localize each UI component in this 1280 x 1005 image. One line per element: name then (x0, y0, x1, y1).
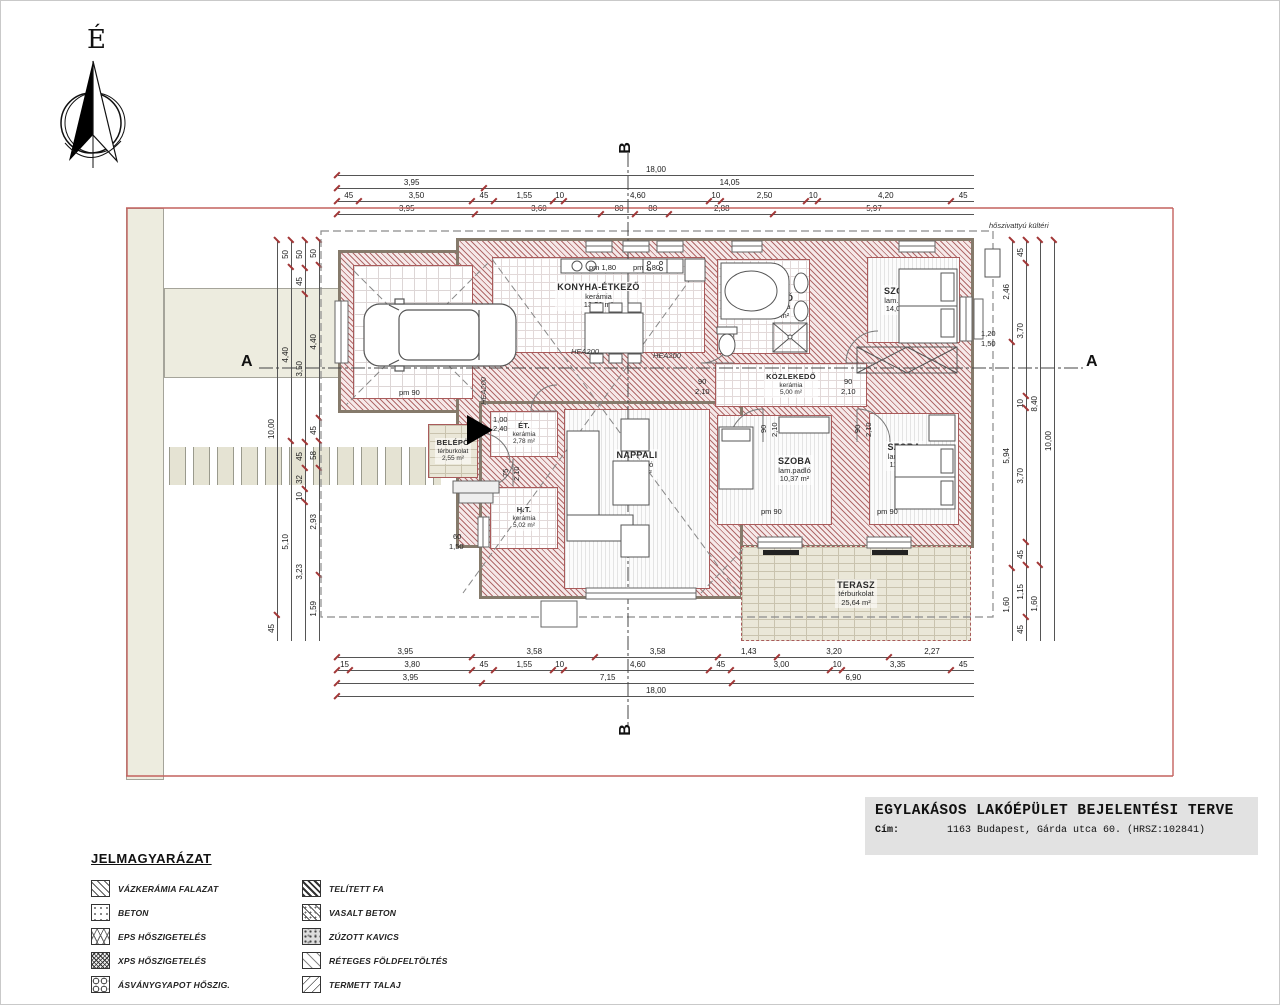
dim-value: 4,60 (565, 190, 710, 202)
plan-annotation: 90 (853, 425, 862, 433)
plan-annotation: 1,50 (981, 339, 996, 348)
legend-label: RÉTEGES FÖLDFELTÖLTÉS (329, 956, 448, 966)
dim-value: 50 (308, 241, 320, 266)
dim-value: 2,93 (308, 469, 320, 576)
dim-value: 3,50 (360, 190, 474, 202)
dim-value: 5,10 (280, 442, 292, 641)
drawing-title: EGYLAKÁSOS LAKÓÉPÜLET BEJELENTÉSI TERVE (875, 803, 1248, 819)
dim-value: 58 (308, 442, 320, 469)
dim-col-left-4: 504,4045582,931,59 (308, 241, 320, 641)
plan-annotation: HEA200 (571, 347, 599, 356)
legend-item: BETON (91, 904, 276, 921)
dim-value: 1,55 (495, 659, 554, 671)
plan-annotation: pm 90 (761, 507, 782, 516)
north-arrow: É (35, 23, 145, 173)
address-value: 1163 Budapest, Gárda utca 60. (HRSZ:1028… (947, 825, 1205, 836)
dim-value: 3,58 (473, 646, 596, 658)
legend-item: ÁSVÁNYGYAPOT HŐSZIG. (91, 976, 276, 993)
dim-value: 1,43 (719, 646, 778, 658)
plan-annotation: 90 (844, 377, 852, 386)
dim-value: 45 (952, 659, 974, 671)
legend-item: VÁZKERÁMIA FALAZAT (91, 880, 276, 897)
plan-annotation: 90 (759, 425, 768, 433)
dim-row-bottom-4: 18,00 (338, 685, 974, 697)
legend: JELMAGYARÁZAT VÁZKERÁMIA FALAZATBETONEPS… (91, 851, 511, 993)
talaj-hatch-icon (302, 976, 321, 993)
dim-value: 3,35 (843, 659, 953, 671)
plan-annotation: hőszivattyú kültéri (989, 221, 1049, 230)
dim-value: 5,97 (774, 203, 974, 215)
dim-value: 3,95 (338, 203, 476, 215)
title-block: EGYLAKÁSOS LAKÓÉPÜLET BEJELENTÉSI TERVE … (865, 797, 1258, 855)
dim-value: 3,95 (338, 646, 473, 658)
plan-annotation: 1,50 (449, 542, 464, 551)
section-marker-b-bottom: B (617, 724, 635, 736)
dim-value: 50 (280, 241, 292, 268)
dim-value: 2,46 (1001, 241, 1013, 343)
dim-value: 50 (294, 241, 306, 269)
mineral-hatch-icon (91, 976, 110, 993)
kavics-hatch-icon (302, 928, 321, 945)
plan-annotation: 90 (698, 377, 706, 386)
section-marker-a-left: A (241, 353, 253, 371)
dim-value: 4,60 (565, 659, 710, 671)
dim-value: 45 (1015, 618, 1027, 641)
legend-column-left: VÁZKERÁMIA FALAZATBETONEPS HŐSZIGETELÉSX… (91, 880, 276, 993)
legend-item: ZÚZOTT KAVICS (302, 928, 487, 945)
plan-annotation: HEA200 (653, 351, 681, 360)
dim-value: 2,50 (722, 190, 808, 202)
dim-value: 4,40 (280, 268, 292, 442)
dim-value: 10,00 (266, 241, 278, 616)
dim-value: 45 (266, 616, 278, 641)
dim-value: 3,58 (596, 646, 719, 658)
dim-value: 6,90 (733, 672, 974, 684)
dim-value: 80 (602, 203, 636, 215)
plan-annotation: pm 90 (877, 507, 898, 516)
plan-annotation: pm 1,80 (589, 263, 616, 272)
plan-annotation: 1,00 (493, 415, 508, 424)
dim-value: 3,50 (294, 295, 306, 443)
plan-annotation: 75 (501, 469, 510, 477)
dim-col-right-4: 10,00 (1043, 241, 1055, 641)
dim-value: 3,00 (732, 659, 832, 671)
road-strip (126, 208, 164, 780)
plan-annotation: 2,10 (841, 387, 856, 396)
legend-label: VÁZKERÁMIA FALAZAT (118, 884, 218, 894)
dim-col-left-1: 10,0045 (266, 241, 278, 641)
dim-value: 45 (338, 190, 360, 202)
dim-value: 4,20 (819, 190, 952, 202)
dim-col-right-1: 2,465,941,60 (1001, 241, 1013, 641)
beton-hatch-icon (91, 904, 110, 921)
legend-item: TELÍTETT FA (302, 880, 487, 897)
wood-hatch-icon (302, 880, 321, 897)
legend-label: EPS HŐSZIGETELÉS (118, 932, 206, 942)
dim-row-top-2: 3,9514,05 (338, 177, 974, 189)
room-garage: GARAZSkerámia20,52 m² (353, 265, 473, 399)
room-ht: H.T.kerámia5,02 m² (490, 487, 558, 549)
legend-label: TELÍTETT FA (329, 884, 384, 894)
dim-value: 3,70 (1015, 409, 1027, 542)
dim-value: 80 (636, 203, 670, 215)
legend-item: RÉTEGES FÖLDFELTÖLTÉS (302, 952, 487, 969)
plan-annotation: HEA200 (479, 377, 488, 405)
plan-annotation: 1,20 (981, 329, 996, 338)
north-label: É (87, 25, 106, 55)
dim-row-bottom-2: 153,80451,55104,60453,00103,3545 (338, 659, 974, 671)
legend-label: VASALT BETON (329, 908, 396, 918)
legend-item: EPS HŐSZIGETELÉS (91, 928, 276, 945)
legend-label: XPS HŐSZIGETELÉS (118, 956, 206, 966)
section-marker-a-right: A (1086, 353, 1098, 371)
dim-value: 2,27 (890, 646, 974, 658)
dim-value: 4,40 (308, 266, 320, 419)
legend-label: ÁSVÁNYGYAPOT HŐSZIG. (118, 980, 230, 990)
room-name: GARAZS (393, 318, 433, 328)
dim-value: 1,59 (308, 576, 320, 641)
room-bedroom-1: SZOBAlam.padló14,00 m² (867, 257, 960, 343)
section-marker-b-top: B (617, 142, 635, 154)
dim-value: 3,20 (778, 646, 890, 658)
dim-value: 1,55 (495, 190, 554, 202)
dim-row-bottom-1: 3,953,583,581,433,202,27 (338, 646, 974, 658)
dim-value: 3,23 (294, 503, 306, 641)
dim-value: 3,95 (338, 672, 483, 684)
legend-label: BETON (118, 908, 149, 918)
drawing-sheet: É GARAZSkerámia20,52 m² KONYHA-ÉTKEZŐker… (0, 0, 1280, 1005)
room-bathroom: FÜRDŐKerámia7,37 m² (717, 259, 810, 354)
dim-value: 18,00 (338, 164, 974, 176)
legend-item: VASALT BETON (302, 904, 487, 921)
vasalt-hatch-icon (302, 904, 321, 921)
dim-value: 5,94 (1001, 343, 1013, 568)
plan-annotation: 2,10 (512, 466, 521, 481)
dim-col-left-3: 50453,504532103,23 (294, 241, 306, 641)
dim-row-top-1: 18,00 (338, 164, 974, 176)
layers-hatch-icon (302, 952, 321, 969)
dim-row-top-3: 453,50451,55104,60102,50104,2045 (338, 190, 974, 202)
legend-label: ZÚZOTT KAVICS (329, 932, 399, 942)
dim-value: 3,70 (1015, 264, 1027, 397)
dim-row-top-4: 3,953,6080802,885,97 (338, 203, 974, 215)
dim-value: 14,05 (485, 177, 974, 189)
dim-value: 1,60 (1029, 566, 1041, 641)
dim-value: 3,60 (476, 203, 603, 215)
dim-value: 45 (952, 190, 974, 202)
plan-annotation: 2,10 (864, 422, 873, 437)
plan-annotation: 2,40 (493, 424, 508, 433)
dim-value: 7,15 (483, 672, 733, 684)
dim-value: 1,60 (1001, 569, 1013, 641)
dim-value: 45 (710, 659, 732, 671)
dim-value: 45 (473, 190, 495, 202)
diag-hatch-icon (91, 880, 110, 897)
eps-hatch-icon (91, 928, 110, 945)
dim-col-right-2: 453,70103,70451,1545 (1015, 241, 1027, 641)
plan-annotation: 2,10 (770, 422, 779, 437)
room-living: NAPPALIlam.padló28,84 m² (564, 409, 710, 589)
xps-hatch-icon (91, 952, 110, 969)
legend-column-right: TELÍTETT FAVASALT BETONZÚZOTT KAVICSRÉTE… (302, 880, 487, 993)
dim-col-left-2: 504,405,10 (280, 241, 292, 641)
terrace: TERASZtérburkolat25,64 m² (741, 546, 971, 641)
dim-value: 2,88 (670, 203, 775, 215)
plan-annotation: 2,10 (695, 387, 710, 396)
dim-row-bottom-3: 3,957,156,90 (338, 672, 974, 684)
dim-value: 8,40 (1029, 241, 1041, 566)
legend-label: TERMETT TALAJ (329, 980, 401, 990)
legend-item: XPS HŐSZIGETELÉS (91, 952, 276, 969)
legend-heading: JELMAGYARÁZAT (91, 851, 511, 866)
room-entry: BELÉPŐtérburkolat2,55 m² (428, 424, 478, 478)
plan-annotation: pm 90 (399, 388, 420, 397)
dim-value: 3,80 (351, 659, 473, 671)
plan-annotation: pm 1,80 (633, 263, 660, 272)
dim-value: 18,00 (338, 685, 974, 697)
legend-item: TERMETT TALAJ (302, 976, 487, 993)
dim-col-right-3: 8,401,60 (1029, 241, 1041, 641)
dim-value: 10,00 (1043, 241, 1055, 641)
plan-annotation: 60 (453, 532, 461, 541)
dim-value: 1,15 (1015, 566, 1027, 618)
address-label: Cím: (875, 825, 947, 836)
dim-value: 3,95 (338, 177, 485, 189)
